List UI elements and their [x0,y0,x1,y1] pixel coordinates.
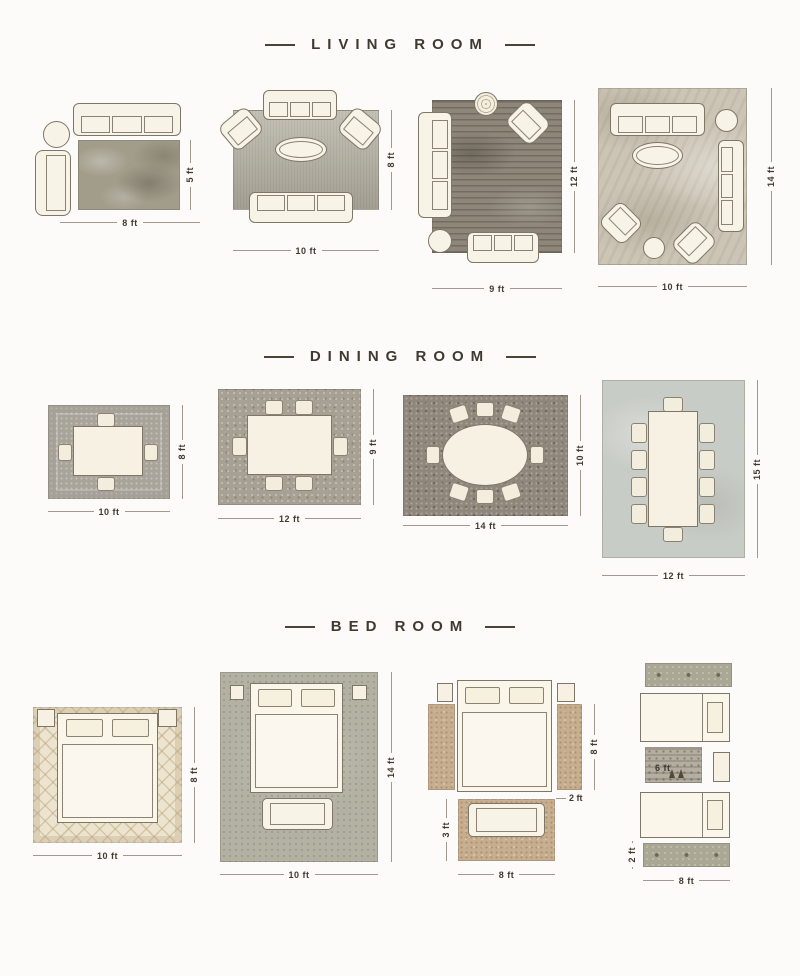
section-title-bed-room: BED ROOM [0,618,800,635]
bed [457,680,552,792]
dining-chair [97,477,115,491]
dining-chair [58,444,72,461]
rug [78,140,180,210]
width-dimension: 10 ft [220,869,378,880]
bed-sheet [255,714,339,787]
height-dimension: 15 ft [751,380,763,558]
nightstand [158,709,177,727]
dining-chair [333,437,348,456]
pillow [301,689,335,706]
side-table-round [643,237,665,259]
side-table-round [428,229,452,253]
dining-table [73,426,143,476]
dining-chair [631,477,647,497]
bed-sheet [62,744,153,817]
living-layout-8x5: 8 ft 5 ft [30,95,200,235]
sofa [249,192,353,223]
height-dimension: 12 ft [568,100,580,253]
nightstand [352,685,367,700]
bench [262,798,333,830]
dining-layout-14x10: 14 ft 10 ft [400,390,590,532]
dining-chair [699,504,715,524]
twin-bed [640,792,730,838]
dining-chair [631,423,647,443]
height-dimension: 8 ft [385,110,397,210]
bench [468,803,545,837]
dining-chair [476,489,494,504]
dining-table [648,411,698,527]
dining-chair [426,446,440,464]
section-title-text: LIVING ROOM [311,36,489,53]
width-dimension: 8 ft [60,217,200,228]
bedroom-layout-10x14: 10 ft 14 ft [215,668,400,883]
dining-chair [476,402,494,417]
coffee-table-oval [632,142,683,169]
runner-height-dimension: 2 ft [626,841,638,869]
dining-chair [144,444,158,461]
runner-rug [643,843,730,867]
title-dash [264,356,294,358]
nightstand [437,683,453,702]
height-dimension: 14 ft [385,672,397,862]
width-dimension: 10 ft [598,281,747,292]
nightstand [713,752,730,782]
height-dimension: 8 ft [176,405,188,499]
runner-height-dimension: 8 ft [588,704,600,790]
pillow [66,719,103,736]
nightstand [37,709,55,727]
bed [250,683,343,793]
title-dash [505,44,535,46]
height-dimension: 9 ft [367,389,379,505]
section-title-text: BED ROOM [331,618,470,635]
dining-chair [265,400,283,415]
living-layout-9x12: 9 ft 12 ft [418,85,598,297]
dining-layout-10x8: 10 ft 8 ft [45,400,190,518]
sofa [418,112,452,218]
coffee-table-oval [275,137,327,162]
sofa [263,90,337,120]
dining-chair [631,504,647,524]
bedroom-layout-10x8: 10 ft 8 ft [30,700,200,865]
accent-rug-width-label: 6 ft [655,763,671,773]
section-title-text: DINING ROOM [310,348,490,365]
nightstand [230,685,244,700]
width-dimension: 10 ft [233,245,379,256]
width-dimension: 8 ft [643,875,730,886]
sofa [73,103,181,136]
dining-chair [530,446,544,464]
foot-rug-height-dimension: 3 ft [440,799,452,861]
section-title-living-room: LIVING ROOM [0,36,800,53]
bedroom-layout-twin-beds: 6 ft 2 ft 8 ft [622,655,797,890]
sofa [610,103,705,136]
dining-table-oval [442,424,528,486]
width-dimension: 10 ft [33,850,182,861]
plant [474,92,498,116]
height-dimension: 10 ft [574,395,586,516]
title-dash [265,44,295,46]
accent-rug [645,747,702,783]
side-table-round [715,109,738,132]
dining-chair [663,527,683,542]
pillow [258,689,292,706]
sofa [718,140,744,232]
width-dimension: 12 ft [602,570,745,581]
living-layout-10x8: 10 ft 8 ft [218,85,403,260]
dining-chair [295,400,313,415]
pillow [112,719,149,736]
living-layout-10x14: 10 ft 14 ft [596,85,796,300]
height-dimension: 5 ft [184,140,196,210]
dining-table [247,415,332,475]
runner-width-dimension: 2 ft [556,793,583,803]
title-dash [485,626,515,628]
width-dimension: 8 ft [458,869,555,880]
title-dash [506,356,536,358]
width-dimension: 10 ft [48,506,170,517]
sofa [467,232,539,263]
dining-chair [232,437,247,456]
dining-layout-12x9: 12 ft 9 ft [215,386,390,524]
twin-bed [640,693,730,742]
bed [57,713,158,823]
bed-sheet [462,712,548,787]
dining-chair [663,397,683,412]
rug-size-guide: LIVING ROOM DINING ROOM BED ROOM 8 ft 5 … [0,0,800,976]
dining-chair [699,477,715,497]
dining-chair [699,450,715,470]
pillow [465,687,499,705]
dining-chair [265,476,283,491]
dining-chair [699,423,715,443]
armchair [35,150,71,216]
section-title-dining-room: DINING ROOM [0,348,800,365]
width-dimension: 12 ft [218,513,361,524]
title-dash [285,626,315,628]
pillow [509,687,543,705]
runner-rug [428,704,455,790]
side-table-round [43,121,70,148]
height-dimension: 14 ft [765,88,777,265]
dining-chair [97,413,115,427]
runner-rug [557,704,582,790]
dining-layout-12x15: 12 ft 15 ft [598,378,768,583]
dining-chair [295,476,313,491]
height-dimension: 8 ft [188,707,200,843]
width-dimension: 14 ft [403,520,568,531]
runner-rug [645,663,732,687]
nightstand [557,683,575,702]
width-dimension: 9 ft [432,283,562,294]
bedroom-layout-runners: 2 ft 8 ft 3 ft 8 ft [428,668,610,883]
dining-chair [631,450,647,470]
